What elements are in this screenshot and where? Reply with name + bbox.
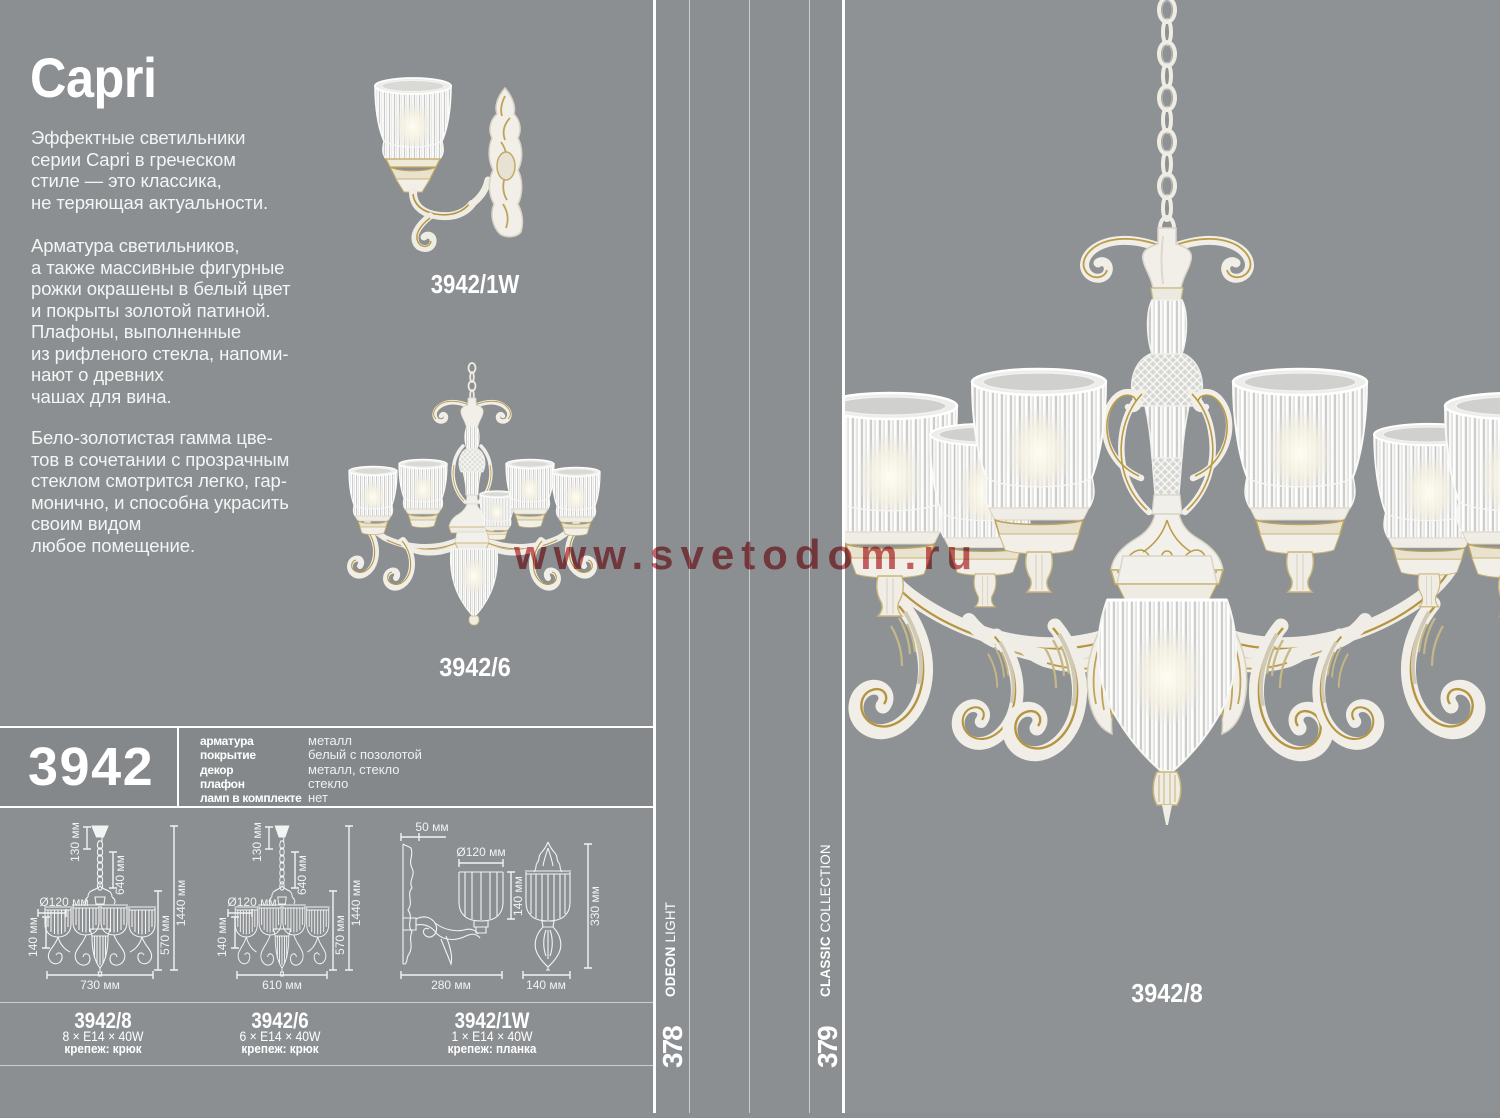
svg-text:Ø120 мм: Ø120 мм [227, 895, 276, 909]
svg-text:50 мм: 50 мм [415, 820, 448, 834]
svg-text:140 мм: 140 мм [215, 917, 229, 957]
svg-text:640 мм: 640 мм [295, 855, 309, 895]
svg-text:730 мм: 730 мм [80, 978, 120, 992]
svg-text:130 мм: 130 мм [250, 822, 264, 862]
svg-text:1440 мм: 1440 мм [349, 880, 363, 927]
svg-text:1440 мм: 1440 мм [174, 880, 188, 927]
svg-text:610 мм: 610 мм [262, 978, 302, 992]
svg-text:140 мм: 140 мм [511, 876, 525, 916]
svg-text:570 мм: 570 мм [158, 915, 172, 955]
svg-text:280 мм: 280 мм [431, 978, 471, 992]
svg-text:640 мм: 640 мм [113, 855, 127, 895]
svg-text:130 мм: 130 мм [68, 822, 82, 862]
svg-text:570 мм: 570 мм [333, 915, 347, 955]
svg-text:140 мм: 140 мм [526, 978, 566, 992]
svg-text:Ø120 мм: Ø120 мм [39, 895, 88, 909]
svg-text:330 мм: 330 мм [588, 886, 602, 926]
svg-text:Ø120 мм: Ø120 мм [456, 845, 505, 859]
svg-text:140 мм: 140 мм [26, 917, 40, 957]
